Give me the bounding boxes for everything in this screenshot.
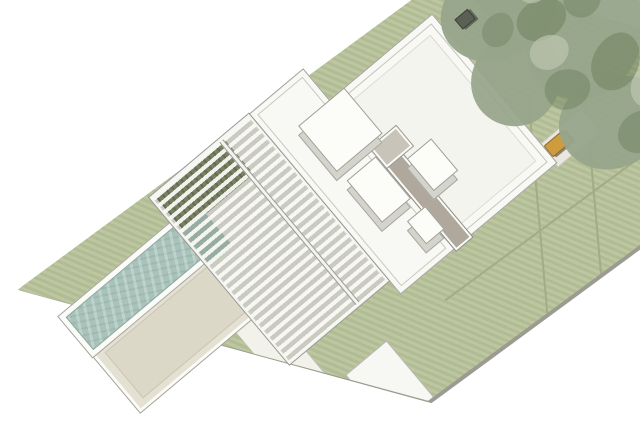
- site-plan-render: [0, 0, 640, 440]
